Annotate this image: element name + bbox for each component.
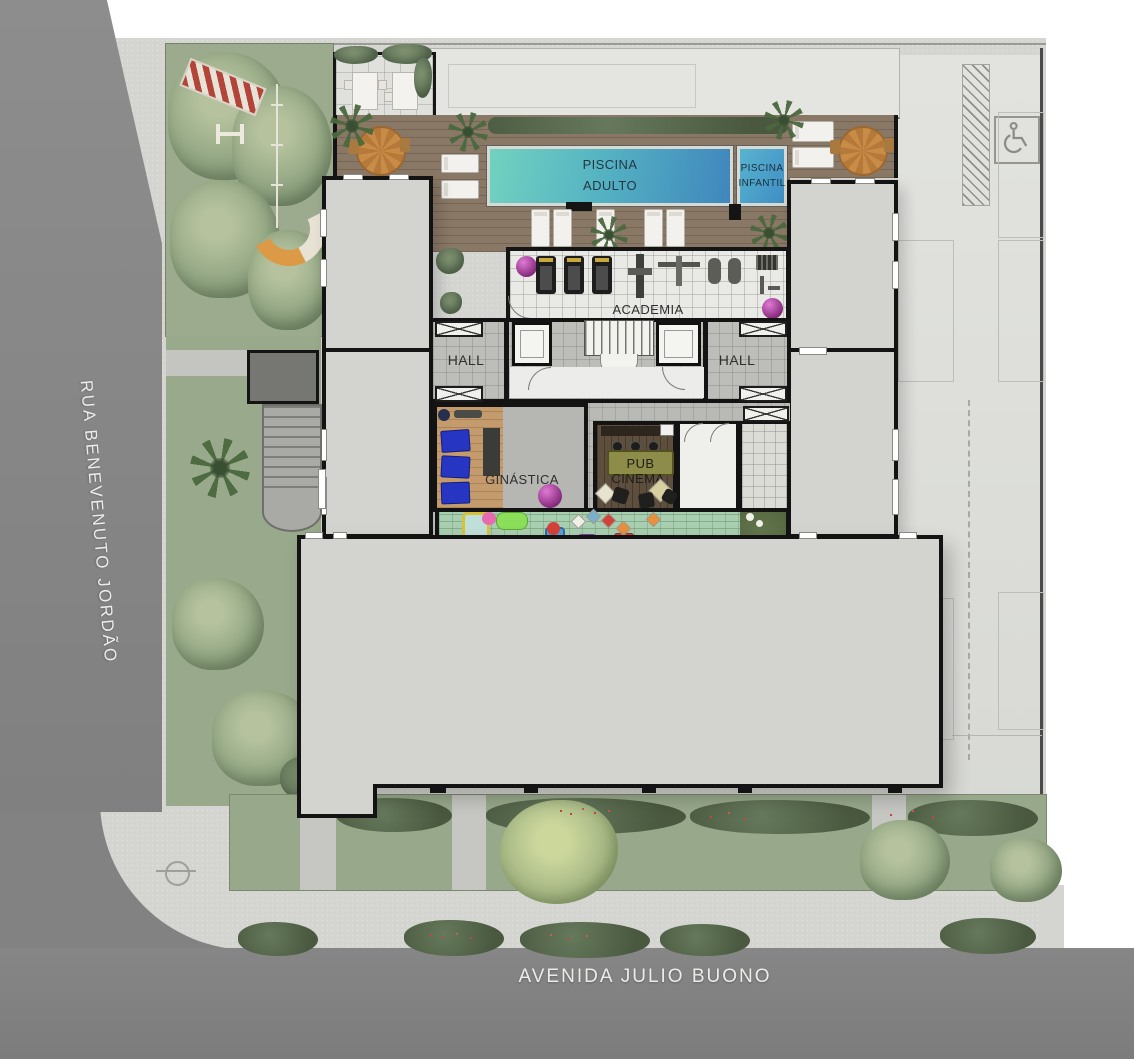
h-bar-obstacle [218,132,242,136]
property-dashed-line [968,400,970,760]
play-ball-pink [482,512,496,525]
left-wing-divider [326,348,429,352]
window [900,533,916,538]
window [306,533,322,538]
core-wall [504,318,509,403]
window [893,214,898,240]
parking-bay-outline [998,592,1044,730]
parking-bay-outline [898,240,954,382]
armchair [638,492,655,509]
play-ball-white [756,520,763,527]
path-entry [166,350,248,376]
window [893,430,898,460]
flowers [430,934,432,936]
elevator-car [520,330,544,358]
window [800,533,816,538]
sun-lounger [666,209,685,247]
planter-grille [739,321,787,337]
palm-tree [330,104,374,148]
external-stair [262,404,322,498]
elevator-shaft [512,322,552,366]
terrace-chair [384,92,393,102]
hedge [520,922,650,958]
external-stair-curve [262,492,322,532]
window [390,175,408,179]
hedge [238,922,318,956]
sun-lounger [792,147,834,168]
hedge [660,924,750,956]
sun-lounger [553,209,572,247]
tree [172,578,264,670]
pool-adult-label-line1: PISCINA [583,155,638,176]
weight-bench [636,254,644,298]
treadmill [592,256,612,294]
service-room [739,421,790,512]
sun-lounger [644,209,663,247]
door-tick [524,786,538,793]
door-tick [430,786,446,793]
terrace-chair [378,80,387,90]
window [893,262,898,288]
window [812,179,830,183]
gym-ball [516,256,537,277]
street-label-bottom: AVENIDA JULIO BUONO [430,966,860,988]
gym-ball [538,484,562,508]
hedge [404,920,504,956]
sun-lounger [441,154,479,173]
deck-hedge [488,117,788,134]
bar-counter [601,426,665,436]
tree [990,838,1062,902]
pool-adult: PISCINA ADULTO [487,146,733,206]
window [321,210,326,236]
round-table [838,126,888,176]
parking-bay-outline [998,240,1044,382]
hall-right-label: HALL [706,352,768,368]
measure-tick [271,144,283,146]
hatched-strip [962,64,990,206]
gym-bench [454,410,482,418]
paving-joint-line [952,735,1042,736]
play-tunnel [496,512,528,530]
planter-grille [435,321,483,337]
pool-threshold [729,204,741,220]
bottom-mass-foot [297,784,377,818]
pool-kids-label: PISCINA INFANTIL [740,149,784,203]
door-tick [642,786,656,793]
door-tick [888,786,902,793]
hall-left-label: HALL [437,352,495,368]
right-wing [787,180,898,538]
window [321,260,326,286]
pool-adult-label-line2: ADULTO [583,176,637,197]
pool-adult-label: PISCINA ADULTO [490,149,730,203]
parking-bay-outline [998,112,1044,238]
door-gap [319,470,325,508]
garden-path [452,795,486,890]
bottom-mass [297,535,943,788]
site-plan: PISCINA ADULTO PISCINA INFANTIL [0,0,1134,1059]
measure-tick [271,104,283,106]
exercise-bike [708,258,721,284]
palm-tree [764,100,804,140]
window [334,533,346,538]
stretch-bar [768,286,780,290]
sun-lounger [531,209,550,247]
street-bottom [0,948,1134,1059]
left-wing [322,176,433,538]
stretch-bar [760,276,764,294]
pool-kids: PISCINA INFANTIL [737,146,787,206]
terrace-chair [344,80,353,90]
exercise-bike [728,258,741,284]
hedge [940,918,1036,954]
window [800,348,826,354]
window [344,175,362,179]
tree [860,820,950,900]
pool-kids-label-line1: PISCINA [741,161,784,176]
coffee-machine [660,424,674,436]
window [893,480,898,514]
measure-tick [271,184,283,186]
ginastica-label: GINÁSTICA [452,472,592,487]
column [483,428,500,476]
planter-grille [739,386,787,402]
treadmill [564,256,584,294]
palm-tree [448,112,488,152]
door-tick [738,786,752,793]
sun-lounger [441,180,479,199]
elevator-shaft [656,322,701,366]
roof-outline [448,64,696,108]
chair [830,140,840,154]
chair [400,138,410,152]
academia-label: ACADEMIA [506,302,790,317]
weight-bench [628,268,652,275]
planter-grille [743,406,789,422]
elevator-car [664,330,693,358]
play-ball-red [547,522,560,535]
palm-tree [190,438,250,498]
treadmill [536,256,556,294]
chair [884,138,894,152]
manhole [165,861,190,886]
foam-roller [438,409,450,421]
manhole-tick [156,870,196,872]
pool-kids-label-line2: INFANTIL [738,176,785,191]
stairwell [584,320,654,356]
planter-grille [435,386,483,402]
dumbbell-rack [756,255,778,270]
barbell-rack [676,256,682,286]
exercise-mat [440,429,470,453]
window [856,179,874,183]
hedge-row [690,800,870,834]
play-ball-white [746,513,754,521]
flowers [560,810,562,812]
utility-room [247,350,319,404]
